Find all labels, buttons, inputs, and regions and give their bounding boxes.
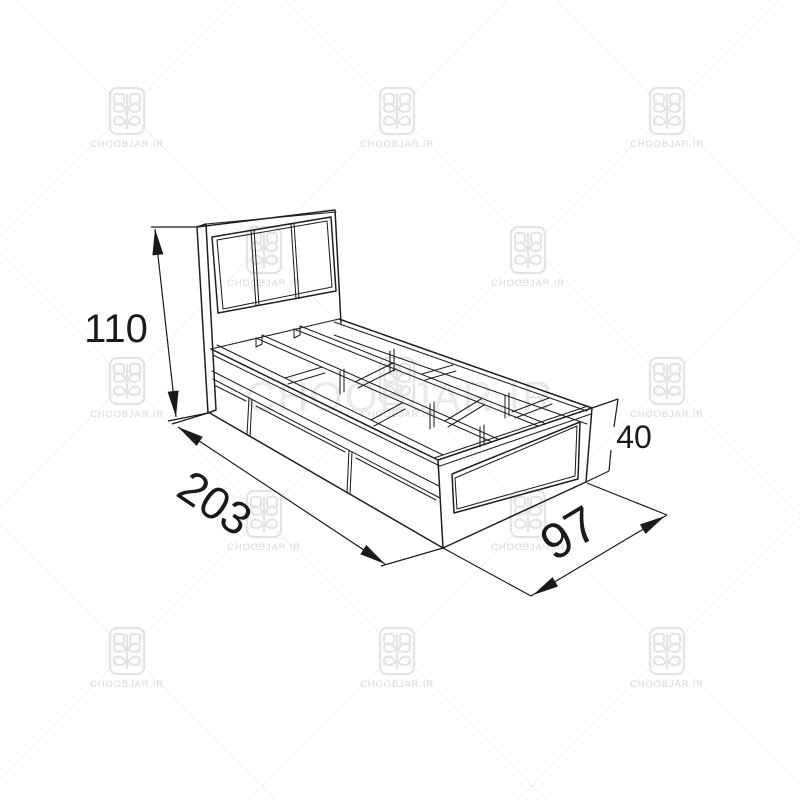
wheat-logo-icon <box>650 88 684 134</box>
dim-height-110: 110 <box>84 227 208 421</box>
watermark-tile: CHOOBJAR.IR <box>360 88 434 150</box>
dim-40-plane <box>586 399 618 482</box>
wheat-logo-icon <box>380 88 414 134</box>
wheat-logo-icon <box>110 358 144 404</box>
watermark-tile: CHOOBJAR.IR <box>90 358 164 420</box>
watermark-text: CHOOBJAR.IR <box>360 679 434 690</box>
foot-back-edge <box>586 408 592 482</box>
wheat-logo-icon <box>511 227 545 273</box>
technical-drawing-page: CHOOBJAR.IRCHOOBJAR.IRCHOOBJAR.IRCHOOBJA… <box>0 0 800 800</box>
watermark-tile: CHOOBJAR.IR <box>630 358 704 420</box>
watermark-tile: CHOOBJAR.IR <box>630 88 704 150</box>
watermark-grid-line <box>0 0 800 558</box>
dim-110-arrow-up <box>152 229 163 255</box>
dim-height-label: 110 <box>84 307 148 351</box>
dim-203-arrow-end <box>360 545 385 564</box>
watermark-tile: CHOOBJAR.IR <box>491 227 565 289</box>
watermark-text: CHOOBJAR.IR <box>90 139 164 150</box>
watermark-grid-line <box>0 204 800 800</box>
watermark-text: CHOOBJAR.IR <box>90 409 164 420</box>
watermark-grid-line <box>0 418 800 800</box>
wheat-logo-icon <box>380 628 414 674</box>
watermark-text: CHOOBJAR.IR <box>491 278 565 289</box>
headboard-top-edge <box>206 212 336 224</box>
watermark-text: CHOOBJAR.IR <box>630 679 704 690</box>
watermark-text: CHOOBJAR.IR <box>360 139 434 150</box>
dim-base-height-label: 40 <box>616 419 652 455</box>
wheat-logo-icon <box>110 628 144 674</box>
drawer-gap-2 <box>347 450 352 494</box>
wheat-logo-icon <box>110 88 144 134</box>
dim-length-203: 203 <box>169 413 443 566</box>
front-corner-edge <box>438 460 443 548</box>
watermark-tile: CHOOBJAR.IR <box>90 628 164 690</box>
dim-97-arrow-end <box>640 516 665 534</box>
watermark-tile: CHOOBJAR.IR <box>630 628 704 690</box>
watermark-tile: CHOOBJAR.IR <box>90 88 164 150</box>
watermark-text: CHOOBJAR.IR <box>90 679 164 690</box>
dim-97-arrow-start <box>533 577 558 595</box>
wheat-logo-icon <box>650 628 684 674</box>
foot-rail-inner-line <box>440 414 591 466</box>
watermark-grid-line <box>0 148 800 800</box>
technical-drawing-canvas: CHOOBJAR.IRCHOOBJAR.IRCHOOBJAR.IRCHOOBJA… <box>0 0 800 800</box>
dim-110-arrow-down <box>168 391 179 418</box>
watermark-text: CHOOBJAR.IR <box>630 139 704 150</box>
watermark-tile: CHOOBJAR.IR <box>360 628 434 690</box>
watermark-grid-line <box>0 0 800 344</box>
wheat-logo-icon <box>650 358 684 404</box>
dim-110-line <box>155 229 176 417</box>
dim-width-97: 97 <box>443 483 667 596</box>
watermark-text: CHOOBJAR.IR <box>227 278 301 289</box>
watermark-text: CHOOBJAR.IR <box>227 542 301 553</box>
dim-203-arrow-start <box>178 427 203 446</box>
